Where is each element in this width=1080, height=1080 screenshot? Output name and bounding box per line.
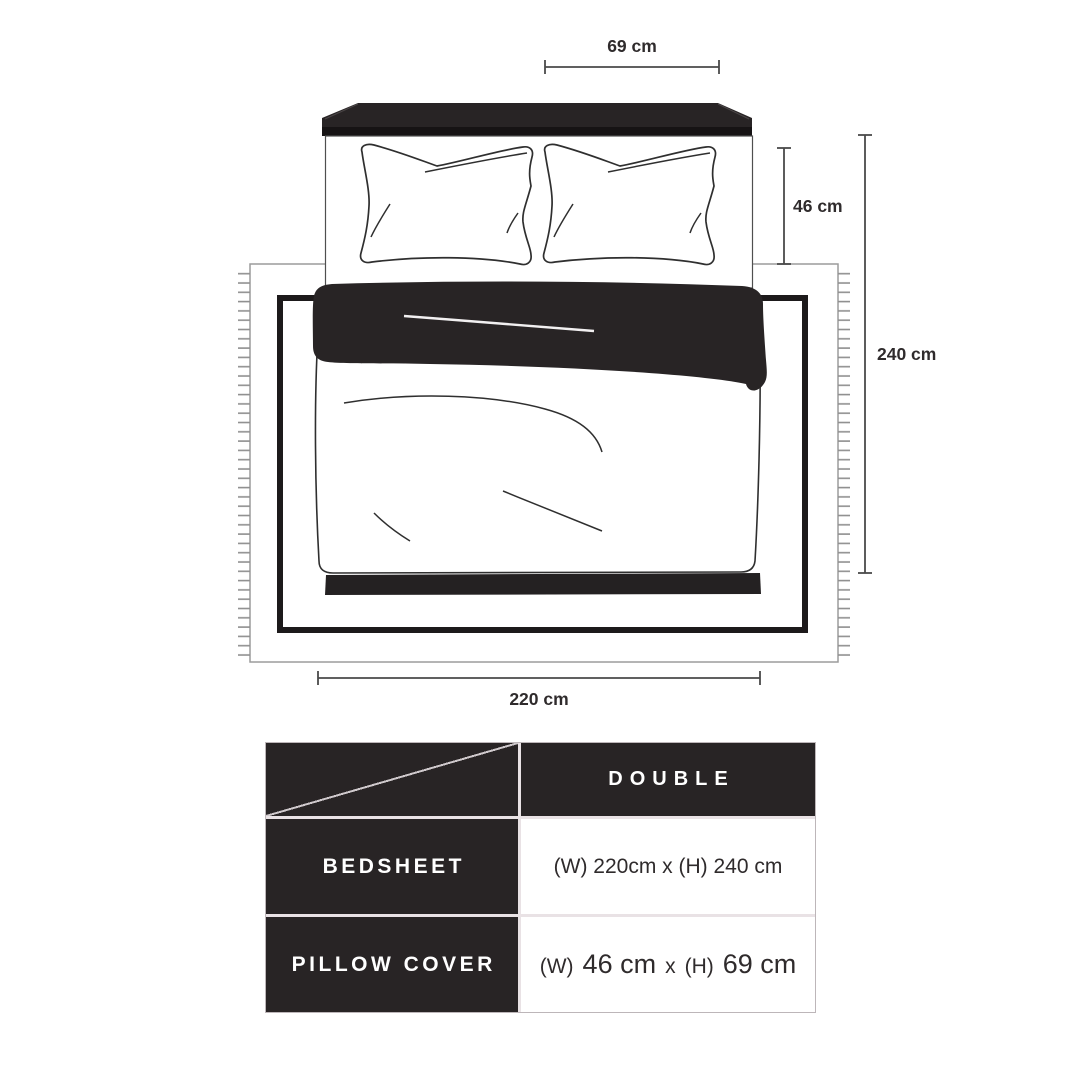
size-table: DOUBLE BEDSHEET (W) 220cm x (H) 240 cm P… [265, 742, 816, 1013]
dimension-bedsheet-height [858, 135, 872, 573]
pillow-width-prefix: (W) [540, 955, 574, 979]
dimension-label-pillow-height: 46 cm [793, 196, 843, 216]
bed-foot-strip [325, 573, 761, 595]
dimension-label-bedsheet-width: 220 cm [509, 689, 568, 709]
table-header-double: DOUBLE [521, 743, 815, 816]
dimension-label-bedsheet-height: 240 cm [877, 344, 936, 364]
pillow-size-separator: x [665, 955, 676, 979]
headboard [322, 103, 752, 136]
table-row-label-pillow-cover: PILLOW COVER [266, 917, 518, 1012]
dimension-label-pillow-width: 69 cm [607, 36, 657, 56]
dimension-bedsheet-width [318, 671, 760, 685]
pillow-height-prefix: (H) [685, 955, 714, 979]
dimension-pillow-height [777, 148, 791, 264]
pillow-width-value: 46 cm [583, 949, 657, 980]
dimension-pillow-width [545, 60, 719, 74]
bed-top-view-diagram: 69 cm 46 cm 240 cm 220 cm [0, 0, 1080, 740]
table-row-label-bedsheet: BEDSHEET [266, 819, 518, 914]
table-row-value-pillow-cover: (W) 46 cm x (H) 69 cm [521, 917, 815, 1012]
bedsheet-size-value: (W) 220cm x (H) 240 cm [554, 855, 783, 879]
pillow-height-value: 69 cm [723, 949, 797, 980]
table-corner-cell [266, 743, 518, 816]
rug-fringe-left [238, 268, 250, 658]
table-header-double-label: DOUBLE [601, 768, 734, 791]
bedsheet-label: BEDSHEET [319, 855, 465, 879]
bedding-size-diagram-page: 69 cm 46 cm 240 cm 220 cm DOUBLE B [0, 0, 1080, 1080]
pillow-cover-size-value: (W) 46 cm x (H) 69 cm [540, 949, 797, 980]
table-row-value-bedsheet: (W) 220cm x (H) 240 cm [521, 819, 815, 914]
rug-fringe-right [838, 268, 850, 658]
pillow-cover-label: PILLOW COVER [288, 953, 496, 977]
